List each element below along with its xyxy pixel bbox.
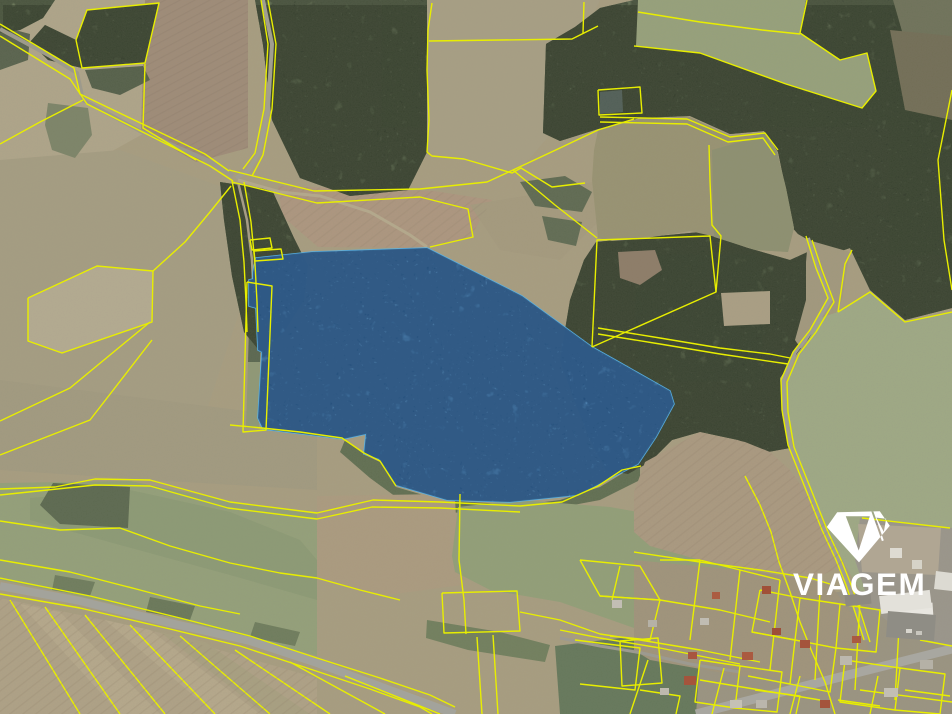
svg-text:VIAGEM: VIAGEM: [793, 566, 926, 602]
